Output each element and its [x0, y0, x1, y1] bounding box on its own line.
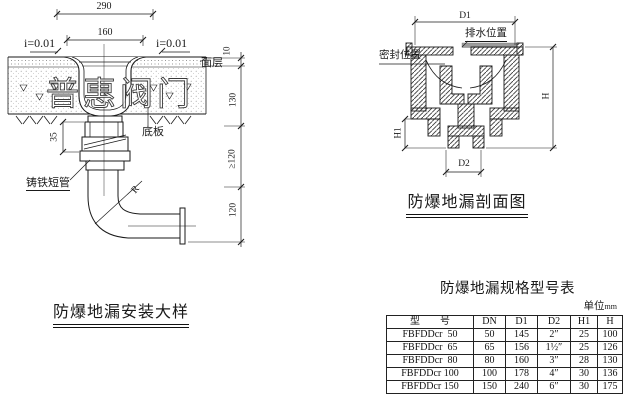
base-plate-label: 底板: [142, 127, 164, 138]
spec-cell: 80: [474, 355, 506, 368]
dim-top-width: 290: [55, 2, 153, 12]
header-cell: DN: [474, 316, 506, 329]
dim-outlet-drop: 120: [229, 203, 239, 217]
spec-cell: 3″: [538, 355, 571, 368]
spec-table-head: 型 号DND1D2H1H: [387, 316, 623, 329]
spec-row: FBFDDcr 65651561½″25126: [387, 342, 623, 355]
header-cell: H: [598, 316, 623, 329]
drain-position-label: 排水位置: [465, 29, 507, 42]
seal-position-label: 密封位置: [379, 51, 421, 62]
spec-cell: FBFDDcr 50: [387, 329, 474, 342]
spec-cell: 6″: [538, 381, 571, 394]
dim-d1: D1: [415, 12, 515, 22]
dim-flange-height: 35: [50, 132, 60, 142]
spec-cell: 145: [506, 329, 538, 342]
spec-row: FBFDDcr 50501452″25100: [387, 329, 623, 342]
spec-cell: 100: [598, 329, 623, 342]
header-cell: D2: [538, 316, 571, 329]
spec-cell: 28: [571, 355, 598, 368]
spec-cell: 130: [598, 355, 623, 368]
dim-h: H: [542, 93, 552, 100]
spec-cell: 50: [474, 329, 506, 342]
spec-table: 型 号DND1D2H1H FBFDDcr 50501452″25100FBFDD…: [386, 315, 623, 394]
drawing-sheet: 普惠阀门 290 160 i=0.01 i=0.01 面层 10 130 ≥12…: [0, 0, 625, 404]
spec-cell: 25: [571, 329, 598, 342]
spec-cell: 156: [506, 342, 538, 355]
spec-cell: 25: [571, 342, 598, 355]
spec-cell: 240: [506, 381, 538, 394]
header-cell: D1: [506, 316, 538, 329]
dim-surface-thickness: 10: [223, 47, 232, 56]
spec-cell: FBFDDcr 100: [387, 368, 474, 381]
spec-cell: 126: [598, 342, 623, 355]
slope-label-right: i=0.01: [156, 37, 187, 49]
spec-cell: 150: [474, 381, 506, 394]
spec-cell: 30: [571, 368, 598, 381]
unit-prefix: 单位: [584, 301, 605, 312]
unit-suffix: mm: [605, 302, 617, 311]
cast-iron-pipe-label: 铸铁短管: [26, 178, 70, 191]
spec-cell: 4″: [538, 368, 571, 381]
installation-detail-title: 防爆地漏安装大样: [53, 298, 189, 325]
watermark-text: 普惠阀门: [46, 76, 194, 113]
spec-cell: 30: [571, 381, 598, 394]
spec-cell: 160: [506, 355, 538, 368]
spec-cell: 175: [598, 381, 623, 394]
surface-layer-label: 面层: [201, 58, 223, 69]
dim-slab-thickness: 130: [229, 93, 239, 107]
dim-d2: D2: [446, 160, 482, 170]
spec-cell: 65: [474, 342, 506, 355]
spec-row: FBFDDcr 1001001784″30136: [387, 368, 623, 381]
section-view-title: 防爆地漏剖面图: [406, 188, 528, 215]
spec-cell: 2″: [538, 329, 571, 342]
slope-label-left: i=0.01: [24, 37, 55, 49]
dim-min-embed: ≥120: [228, 149, 238, 168]
spec-row: FBFDDcr 1501502406″30175: [387, 381, 623, 394]
spec-cell: 1½″: [538, 342, 571, 355]
spec-cell: FBFDDcr 80: [387, 355, 474, 368]
spec-cell: 136: [598, 368, 623, 381]
spec-table-title: 防爆地漏规格型号表: [440, 282, 572, 297]
spec-cell: 178: [506, 368, 538, 381]
spec-cell: FBFDDcr 150: [387, 381, 474, 394]
spec-cell: FBFDDcr 65: [387, 342, 474, 355]
spec-header-row: 型 号DND1D2H1H: [387, 316, 623, 329]
header-cell: 型 号: [387, 316, 474, 329]
spec-table-body: FBFDDcr 50501452″25100FBFDDcr 65651561½″…: [387, 329, 623, 394]
unit-label: 单位mm: [553, 296, 617, 314]
spec-row: FBFDDcr 80801603″28130: [387, 355, 623, 368]
outlet-pipe-stack: [80, 116, 196, 244]
header-cell: H1: [571, 316, 598, 329]
spec-cell: 100: [474, 368, 506, 381]
dimension-linework: [30, 9, 245, 247]
dim-h1: H1: [394, 128, 403, 139]
dim-inner-width: 160: [67, 28, 143, 38]
drain-body-section: [406, 43, 523, 148]
